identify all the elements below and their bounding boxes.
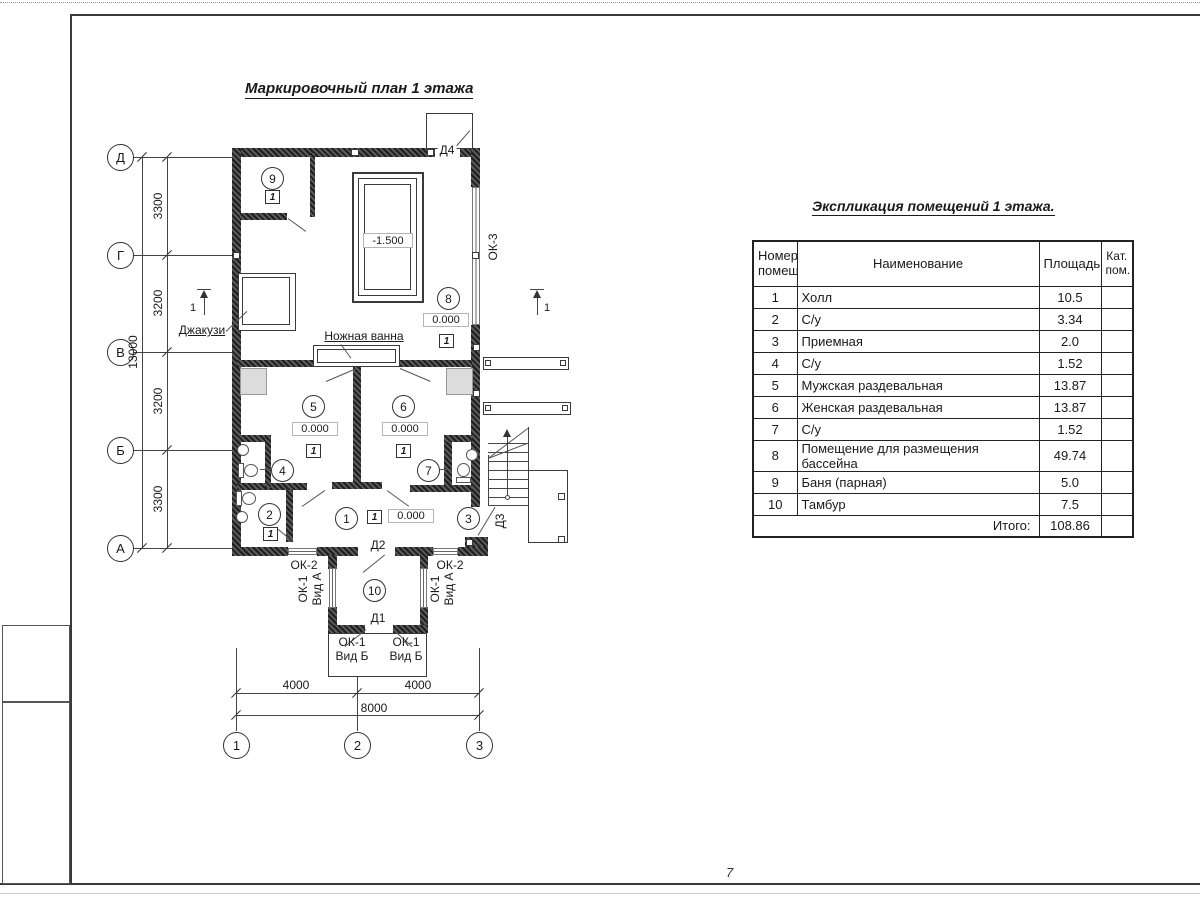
room-number: 2 bbox=[266, 508, 273, 522]
ramp-bar-lower bbox=[483, 402, 571, 415]
floor-type-mark: 1 bbox=[439, 334, 454, 348]
room-marker-8: 8 bbox=[437, 287, 460, 310]
room-number: 4 bbox=[279, 464, 286, 478]
room-name-cell: Баня (парная) bbox=[797, 471, 1039, 493]
col-header-name: Наименование bbox=[797, 241, 1039, 286]
room-number: 3 bbox=[465, 512, 472, 526]
axis-bubble-3: 3 bbox=[466, 732, 493, 759]
jacuzzi-label: Джакузи bbox=[179, 323, 225, 337]
axis-bubble-d: Д bbox=[107, 144, 134, 171]
stair-start-dot bbox=[505, 495, 510, 500]
room-area-cell: 3.34 bbox=[1039, 308, 1101, 330]
page-note: 7 bbox=[726, 865, 733, 880]
axis-bubble-a: А bbox=[107, 535, 134, 562]
wall-nub bbox=[233, 252, 240, 259]
room-area-cell: 13.87 bbox=[1039, 396, 1101, 418]
leader-line-d2 bbox=[363, 554, 385, 572]
room-number-cell: 8 bbox=[753, 440, 797, 471]
room-number-cell: 7 bbox=[753, 418, 797, 440]
stair-direction-line bbox=[507, 434, 508, 498]
room-number: 9 bbox=[269, 172, 276, 186]
wall-nub bbox=[427, 149, 434, 156]
toilet-bowl-icon bbox=[244, 464, 258, 477]
table-title: Экспликация помещений 1 этажа. bbox=[812, 198, 1055, 216]
elevation-mark: 0.000 bbox=[388, 509, 434, 523]
room-number-cell: 1 bbox=[753, 286, 797, 308]
leader-line-room7 bbox=[438, 469, 452, 470]
col-header-category: Кат. пом. bbox=[1101, 241, 1133, 286]
table-row: 6 Женская раздевальная 13.87 bbox=[753, 396, 1133, 418]
ramp-post bbox=[560, 360, 566, 366]
door-tag-d3: Д3 bbox=[493, 514, 507, 529]
partition-wc7-v bbox=[444, 442, 452, 492]
window-ok1-left bbox=[329, 568, 336, 608]
axis-bubble-2: 2 bbox=[344, 732, 371, 759]
jacuzzi-outer bbox=[238, 273, 296, 331]
room-marker-2: 2 bbox=[258, 503, 281, 526]
tambour-wall-bottom-right bbox=[393, 625, 428, 633]
floor-type-mark: 1 bbox=[265, 190, 280, 204]
wall-nub bbox=[473, 344, 480, 351]
floor-type-mark: 1 bbox=[306, 444, 321, 458]
axis-line bbox=[134, 255, 237, 256]
wall-nub bbox=[472, 252, 479, 259]
dim-label: 3200 bbox=[151, 388, 165, 415]
door-line-hall-right bbox=[387, 490, 409, 507]
room-name-cell: С/у bbox=[797, 352, 1039, 374]
total-value: 108.86 bbox=[1039, 515, 1101, 537]
stair-tread bbox=[488, 488, 528, 489]
room-marker-10: 10 bbox=[363, 579, 386, 602]
axis-line bbox=[134, 450, 237, 451]
frame-left bbox=[70, 14, 72, 885]
table-header-row: Номер помещ. Наименование Площадь Кат. п… bbox=[753, 241, 1133, 286]
room-area-cell: 49.74 bbox=[1039, 440, 1101, 471]
wall-nub bbox=[466, 539, 473, 546]
stair-left-edge bbox=[488, 455, 489, 505]
axis-line bbox=[134, 157, 237, 158]
room-category-cell bbox=[1101, 308, 1133, 330]
frame-bottom bbox=[0, 883, 1200, 885]
toilet-bowl-icon bbox=[242, 492, 256, 505]
room-number-cell: 4 bbox=[753, 352, 797, 374]
table-row: 4 С/у 1.52 bbox=[753, 352, 1133, 374]
door-tag-d2: Д2 bbox=[369, 538, 388, 552]
room-number: 7 bbox=[425, 464, 432, 478]
sink-icon bbox=[237, 444, 249, 456]
wall-hall-top-right bbox=[410, 485, 472, 492]
dim-label: 4000 bbox=[405, 678, 432, 692]
room-name-cell: Тамбур bbox=[797, 493, 1039, 515]
stair-arrow-icon bbox=[503, 429, 511, 437]
table-row: 10 Тамбур 7.5 bbox=[753, 493, 1133, 515]
window-tag-ok3: ОК-3 bbox=[486, 234, 500, 261]
ramp-post bbox=[562, 405, 568, 411]
wall-center-vertical bbox=[353, 360, 361, 482]
dim-label: 3300 bbox=[151, 486, 165, 513]
room-marker-3: 3 bbox=[457, 507, 480, 530]
floor-type-mark: 1 bbox=[396, 444, 411, 458]
room-name-cell: Мужская раздевальная bbox=[797, 374, 1039, 396]
room-area-cell: 5.0 bbox=[1039, 471, 1101, 493]
window-tag-ok1-vid-b-left: ОК-1 Вид Б bbox=[336, 636, 369, 664]
room-category-cell bbox=[1101, 440, 1133, 471]
elevation-mark: 0.000 bbox=[292, 422, 338, 436]
entry-platform bbox=[528, 470, 568, 543]
room-marker-5: 5 bbox=[302, 395, 325, 418]
wall-right-upper bbox=[471, 148, 480, 187]
axis-letter: А bbox=[116, 541, 125, 556]
dim-label-total: 8000 bbox=[361, 701, 388, 715]
room-name-cell: Помещение для размещения бассейна bbox=[797, 440, 1039, 471]
axis-bubble-1: 1 bbox=[223, 732, 250, 759]
platform-post bbox=[558, 493, 565, 500]
total-category-cell bbox=[1101, 515, 1133, 537]
door-tag-d1: Д1 bbox=[371, 611, 386, 625]
platform-post bbox=[558, 536, 565, 543]
axis-number: 1 bbox=[233, 738, 240, 753]
room-area-cell: 10.5 bbox=[1039, 286, 1101, 308]
room-area-cell: 1.52 bbox=[1039, 352, 1101, 374]
table-row: 8 Помещение для размещения бассейна 49.7… bbox=[753, 440, 1133, 471]
tambour-wall-bottom-left bbox=[328, 625, 365, 633]
col-header-area: Площадь bbox=[1039, 241, 1101, 286]
room-category-cell bbox=[1101, 286, 1133, 308]
dim-label: 3300 bbox=[151, 193, 165, 220]
room-number-cell: 9 bbox=[753, 471, 797, 493]
dimension-line-bottom-total bbox=[236, 715, 479, 716]
axis-letter: В bbox=[116, 345, 125, 360]
table-total-row: Итого: 108.86 bbox=[753, 515, 1133, 537]
axis-letter: Б bbox=[116, 443, 125, 458]
axis-number: 3 bbox=[476, 738, 483, 753]
room-marker-6: 6 bbox=[392, 395, 415, 418]
room-name-cell: Женская раздевальная bbox=[797, 396, 1039, 418]
partition-sauna-bottom bbox=[240, 213, 287, 220]
room-number-cell: 6 bbox=[753, 396, 797, 418]
elevation-mark-pool: -1.500 bbox=[363, 233, 413, 248]
room-marker-1: 1 bbox=[335, 507, 358, 530]
room-marker-7: 7 bbox=[417, 459, 440, 482]
dim-label-total: 13000 bbox=[126, 335, 140, 368]
wall-middle-right bbox=[395, 360, 472, 367]
window-tag-ok2-right: ОК-2 bbox=[437, 558, 464, 572]
stair-tread bbox=[488, 470, 528, 471]
dim-label: 4000 bbox=[283, 678, 310, 692]
room-name-cell: С/у bbox=[797, 308, 1039, 330]
room-category-cell bbox=[1101, 396, 1133, 418]
room-number-cell: 3 bbox=[753, 330, 797, 352]
col-header-number: Номер помещ. bbox=[753, 241, 797, 286]
foot-bath bbox=[313, 345, 400, 367]
wall-right-lower bbox=[471, 325, 480, 507]
room-category-cell bbox=[1101, 352, 1133, 374]
room-category-cell bbox=[1101, 330, 1133, 352]
total-label: Итого: bbox=[753, 515, 1039, 537]
axis-bubble-b: Б bbox=[107, 437, 134, 464]
section-arrow-icon bbox=[200, 290, 208, 298]
door-line-hall-left bbox=[302, 490, 326, 507]
extension-line bbox=[357, 677, 358, 731]
toilet-bowl-icon bbox=[457, 463, 470, 477]
door-tag-d4: Д4 bbox=[438, 143, 457, 157]
door-swing-sauna bbox=[288, 218, 306, 232]
axis-letter: Д bbox=[116, 150, 125, 165]
drawing-sheet-page: { "plan_title": "Маркировочный план 1 эт… bbox=[0, 0, 1200, 900]
wall-nub bbox=[473, 390, 480, 397]
shower-cabin-right bbox=[446, 368, 473, 395]
stair-tread bbox=[488, 479, 528, 480]
stair-break-line bbox=[488, 443, 529, 459]
frame-top bbox=[70, 14, 1200, 16]
elevation-mark: 0.000 bbox=[423, 313, 469, 327]
room-category-cell bbox=[1101, 418, 1133, 440]
window-tag-ok1-vid-a-right: ОК-1 Вид А bbox=[429, 572, 457, 605]
partition-room2-v bbox=[286, 490, 293, 542]
filing-strip-box-lower bbox=[2, 702, 70, 884]
shower-cabin-left bbox=[240, 368, 267, 395]
room-number: 8 bbox=[445, 292, 452, 306]
room-category-cell bbox=[1101, 471, 1133, 493]
room-category-cell bbox=[1101, 493, 1133, 515]
wall-top-left bbox=[232, 148, 435, 157]
sink-icon bbox=[466, 449, 478, 461]
table-row: 5 Мужская раздевальная 13.87 bbox=[753, 374, 1133, 396]
toilet-tank-icon bbox=[456, 477, 471, 483]
room-name-cell: С/у bbox=[797, 418, 1039, 440]
floor-type-mark: 1 bbox=[367, 510, 382, 524]
axis-number: 2 bbox=[354, 738, 361, 753]
door-line-room6 bbox=[400, 368, 431, 382]
wall-middle-left bbox=[237, 360, 318, 367]
axis-bubble-g: Г bbox=[107, 242, 134, 269]
tambour-wall-left-upper bbox=[328, 555, 337, 569]
room-area-cell: 7.5 bbox=[1039, 493, 1101, 515]
room-category-cell bbox=[1101, 374, 1133, 396]
table-row: 9 Баня (парная) 5.0 bbox=[753, 471, 1133, 493]
section-arrow-icon bbox=[533, 290, 541, 298]
elevation-mark: 0.000 bbox=[382, 422, 428, 436]
door-line-room5 bbox=[326, 368, 357, 382]
window-ok2-left bbox=[288, 548, 317, 555]
filing-strip-box-upper bbox=[2, 625, 70, 702]
stair-tread bbox=[488, 461, 528, 462]
table-row: 7 С/у 1.52 bbox=[753, 418, 1133, 440]
room-area-cell: 1.52 bbox=[1039, 418, 1101, 440]
axis-line bbox=[134, 548, 237, 549]
axis-letter: Г bbox=[117, 248, 124, 263]
room-marker-9: 9 bbox=[261, 167, 284, 190]
room-area-cell: 2.0 bbox=[1039, 330, 1101, 352]
table-row: 1 Холл 10.5 bbox=[753, 286, 1133, 308]
dim-label: 3200 bbox=[151, 290, 165, 317]
room-name-cell: Холл bbox=[797, 286, 1039, 308]
plan-title: Маркировочный план 1 этажа bbox=[245, 80, 473, 99]
room-number: 1 bbox=[343, 512, 350, 526]
partition-wc4-v bbox=[265, 435, 271, 488]
sheet-perforation-line bbox=[0, 2, 1200, 4]
ramp-post bbox=[485, 405, 491, 411]
room-area-cell: 13.87 bbox=[1039, 374, 1101, 396]
foot-bath-label: Ножная ванна bbox=[324, 329, 403, 343]
window-tag-ok1-vid-b-right: ОК-1 Вид Б bbox=[390, 636, 423, 664]
window-tag-ok2-left: ОК-2 bbox=[291, 558, 318, 572]
foot-bath-inner bbox=[317, 349, 396, 363]
sink-icon bbox=[236, 511, 248, 523]
sheet-shadow-line bbox=[0, 893, 1200, 894]
room-number: 10 bbox=[368, 584, 381, 598]
floor-type-mark: 1 bbox=[263, 527, 278, 541]
section-mark-label: 1 bbox=[190, 302, 196, 314]
ramp-post bbox=[485, 360, 491, 366]
jacuzzi-inner bbox=[242, 277, 290, 325]
window-ok2-right bbox=[433, 548, 458, 555]
wall-bottom-seg4 bbox=[458, 547, 488, 556]
room-number: 5 bbox=[310, 400, 317, 414]
section-mark-label: 1 bbox=[544, 302, 550, 314]
partition-wc7-h bbox=[444, 435, 472, 442]
table-row: 3 Приемная 2.0 bbox=[753, 330, 1133, 352]
room-number-cell: 2 bbox=[753, 308, 797, 330]
room-number-cell: 5 bbox=[753, 374, 797, 396]
tambour-wall-right-upper bbox=[420, 555, 428, 569]
partition-sauna-right bbox=[310, 153, 315, 217]
window-ok1-right bbox=[420, 568, 427, 608]
room-explication-table: Номер помещ. Наименование Площадь Кат. п… bbox=[752, 240, 1134, 538]
ramp-bar-upper bbox=[483, 357, 569, 370]
wall-bottom-seg1 bbox=[232, 547, 288, 556]
room-marker-4: 4 bbox=[271, 459, 294, 482]
window-tag-ok1-vid-a-left: ОК-1 Вид А bbox=[297, 572, 325, 605]
table-row: 2 С/у 3.34 bbox=[753, 308, 1133, 330]
wall-hall-top-left bbox=[237, 483, 307, 490]
room-number-cell: 10 bbox=[753, 493, 797, 515]
axis-line bbox=[134, 352, 237, 353]
wall-nub bbox=[351, 149, 359, 156]
wall-bottom-seg2 bbox=[317, 547, 358, 556]
room-name-cell: Приемная bbox=[797, 330, 1039, 352]
wall-hall-top-center bbox=[332, 482, 382, 489]
room-number: 6 bbox=[400, 400, 407, 414]
